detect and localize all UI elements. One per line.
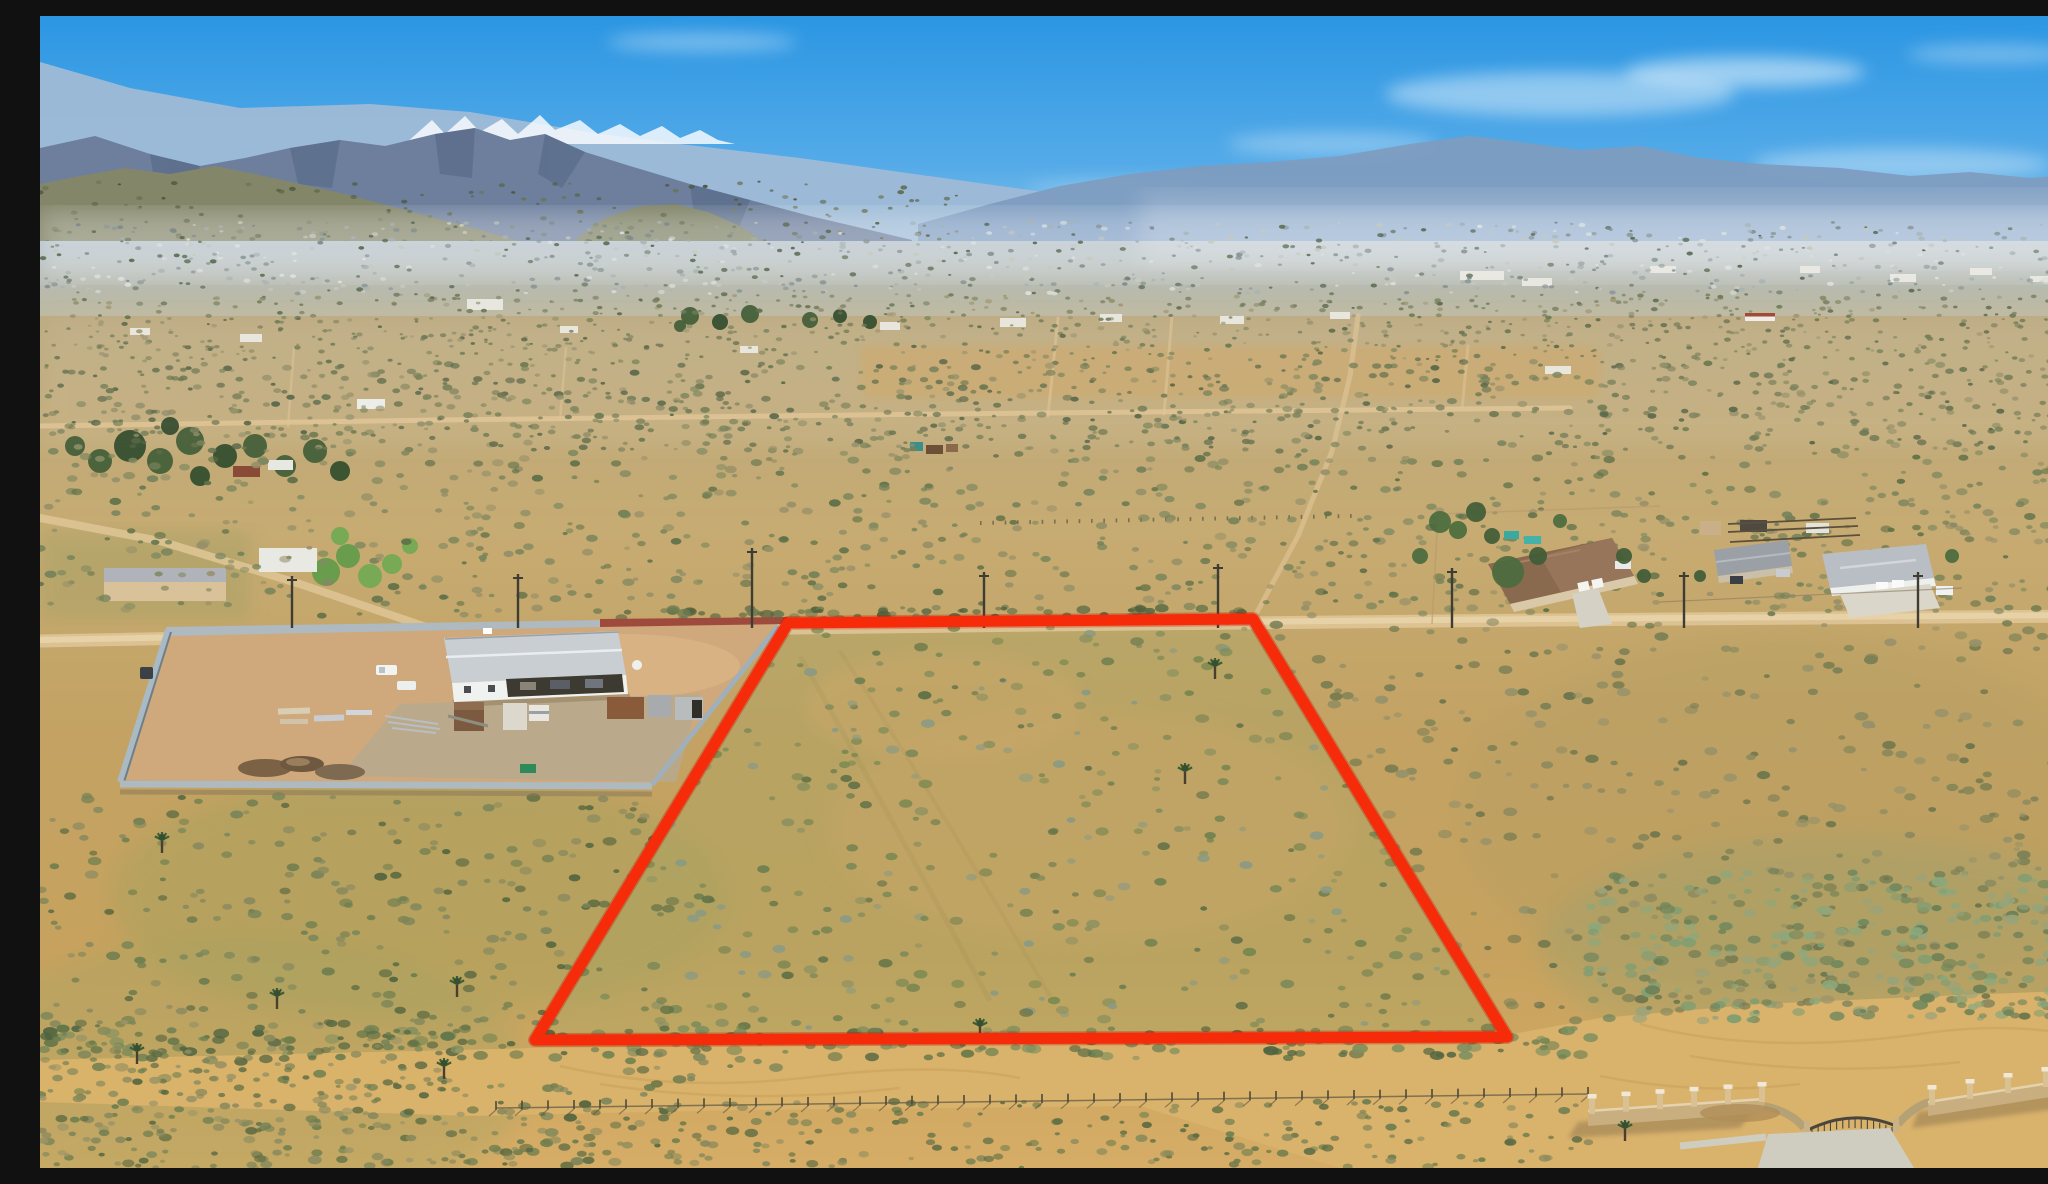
- fence-post: [1054, 520, 1056, 524]
- scrub-bush: [443, 915, 451, 920]
- scrub-bush: [860, 335, 864, 338]
- scrub-bush: [1875, 340, 1879, 342]
- scrub-bush: [274, 303, 278, 305]
- scrub-bush: [196, 889, 205, 894]
- scrub-bush: [1225, 344, 1232, 348]
- scrub-bush: [1260, 255, 1263, 257]
- scrub-bush: [1901, 471, 1906, 474]
- scrub-bush: [567, 590, 576, 596]
- scrub-bush: [463, 222, 469, 225]
- scrub-bush: [1227, 255, 1233, 259]
- scrub-bush: [1704, 250, 1708, 252]
- scrub-bush: [987, 390, 992, 393]
- scrub-bush: [769, 1063, 783, 1072]
- scrub-bush: [1658, 441, 1663, 444]
- scrub-bush: [919, 498, 931, 505]
- scrub-bush: [1549, 432, 1555, 435]
- scrub-bush: [1632, 327, 1635, 329]
- scrub-bush: [88, 421, 92, 424]
- scrub-bush: [959, 735, 968, 740]
- scrub-bush: [1632, 271, 1638, 275]
- scrub-bush: [1176, 306, 1182, 310]
- scrub-bush: [1629, 230, 1632, 232]
- scrub-bush: [1490, 497, 1496, 501]
- scrub-bush: [107, 428, 115, 433]
- scrub-bush: [1600, 260, 1604, 263]
- fence-post: [1202, 517, 1204, 521]
- scrub-bush: [884, 313, 887, 315]
- scrub-bush: [582, 282, 589, 286]
- scrub-bush: [1619, 648, 1630, 655]
- scrub-bush: [199, 539, 211, 546]
- scrub-bush: [1045, 363, 1055, 369]
- scrub-bush: [947, 318, 950, 320]
- scrub-bush: [1071, 458, 1080, 463]
- scrub-bush: [1367, 429, 1372, 432]
- scrub-bush: [175, 205, 181, 208]
- scrub-bush: [1612, 681, 1624, 689]
- scrub-bush: [159, 959, 166, 964]
- scrub-bush: [1245, 292, 1249, 294]
- scrub-bush: [1638, 428, 1643, 431]
- scrub-bush: [356, 275, 360, 278]
- scrub-bush: [1050, 448, 1059, 453]
- scrub-bush: [956, 399, 963, 403]
- scrub-bush: [1985, 596, 1996, 603]
- scrub-bush: [1107, 411, 1111, 414]
- scrub-bush: [1098, 236, 1104, 240]
- scrub-bush: [318, 338, 323, 341]
- scrub-bush: [535, 489, 545, 495]
- scrub-bush: [415, 1061, 428, 1069]
- scrub-bush: [1996, 409, 2004, 414]
- scrub-bush: [920, 377, 928, 382]
- scrub-bush: [1072, 892, 1079, 896]
- scrub-bush: [1850, 388, 1854, 390]
- scrub-bush: [1009, 520, 1017, 525]
- scrub-bush: [1825, 609, 1832, 613]
- scrub-bush: [2023, 945, 2033, 951]
- scrub-bush: [363, 388, 368, 391]
- scrub-bush: [1032, 552, 1039, 557]
- scrub-bush: [848, 782, 860, 790]
- scrub-bush: [1919, 413, 1923, 416]
- scrub-bush: [1808, 817, 1820, 825]
- scrub-bush: [750, 409, 756, 413]
- scrub-bush: [696, 379, 704, 384]
- scrub-bush: [199, 1006, 209, 1012]
- scrub-bush: [1678, 237, 1681, 239]
- scrub-bush: [804, 668, 817, 676]
- scrub-bush: [278, 1131, 286, 1136]
- scrub-bush: [890, 365, 898, 370]
- scrub-bush: [154, 425, 160, 429]
- scrub-bush: [706, 1004, 712, 1008]
- scrub-bush: [463, 412, 473, 418]
- scrub-bush: [1849, 357, 1855, 361]
- scrub-bush: [1579, 223, 1586, 227]
- scrub-bush: [947, 391, 955, 396]
- scrub-bush: [601, 382, 606, 385]
- scrub-bush: [1962, 786, 1975, 794]
- scrub-bush: [1583, 281, 1588, 284]
- scrub-bush: [1379, 372, 1388, 378]
- scrub-bush: [1786, 719, 1795, 724]
- scrub-bush: [1334, 688, 1342, 693]
- scrub-bush: [1408, 305, 1414, 308]
- scrub-bush: [1650, 648, 1657, 652]
- scrub-bush: [1113, 470, 1119, 474]
- scrub-bush: [1453, 355, 1457, 358]
- scrub-bush: [1812, 452, 1817, 455]
- scrub-bush: [820, 200, 827, 204]
- scrub-bush: [1174, 826, 1184, 832]
- scrub-bush: [1945, 400, 1950, 403]
- scrub-bush: [1155, 574, 1167, 581]
- scrub-bush: [605, 396, 611, 400]
- scrub-bush: [758, 365, 762, 368]
- scrub-bush: [1980, 783, 1992, 791]
- scrub-bush: [594, 259, 599, 262]
- scrub-bush: [2039, 401, 2046, 405]
- scrub-bush: [143, 279, 146, 281]
- scrub-bush: [1962, 448, 1969, 452]
- scrub-bush: [954, 252, 958, 255]
- scrub-bush: [810, 540, 818, 545]
- scrub-bush: [200, 899, 206, 903]
- scrub-bush: [1985, 536, 1993, 541]
- scrub-bush: [1826, 821, 1836, 827]
- scrub-bush: [396, 473, 404, 478]
- scrub-bush: [666, 897, 679, 905]
- scrub-bush: [873, 369, 879, 373]
- scrub-bush: [831, 273, 835, 276]
- scrub-bush: [1352, 314, 1356, 317]
- scrub-bush: [1056, 249, 1062, 253]
- scrub-bush: [1811, 385, 1818, 389]
- scrub-bush: [501, 349, 504, 351]
- scrub-bush: [137, 962, 146, 968]
- scrub-bush: [423, 1077, 431, 1082]
- scrub-bush: [1789, 747, 1797, 752]
- scrub-bush: [1707, 277, 1710, 279]
- scrub-bush: [1534, 721, 1546, 728]
- scrub-bush: [1916, 902, 1932, 912]
- scrub-bush: [586, 535, 598, 542]
- scrub-bush: [333, 423, 337, 426]
- scrub-bush: [320, 375, 325, 378]
- scrub-bush: [1512, 225, 1516, 228]
- scrub-bush: [966, 253, 972, 257]
- scrub-bush: [1593, 355, 1597, 357]
- scrub-bush: [401, 200, 407, 204]
- scrub-bush: [620, 232, 625, 235]
- scrub-bush: [788, 260, 792, 263]
- scrub-bush: [1142, 257, 1146, 260]
- scrub-bush: [732, 294, 737, 297]
- scrub-bush: [166, 387, 171, 390]
- scrub-bush: [1090, 312, 1095, 315]
- scrub-bush: [1979, 368, 1984, 371]
- scrub-bush: [2034, 539, 2043, 545]
- scrub-bush: [1707, 876, 1721, 885]
- scrub-bush: [554, 243, 559, 246]
- scrub-bush: [1949, 289, 1954, 292]
- scrub-bush: [1580, 355, 1584, 357]
- scrub-bush: [531, 285, 538, 289]
- scrub-bush: [513, 433, 522, 439]
- scrub-bush: [1611, 530, 1616, 533]
- scrub-bush: [1293, 304, 1297, 307]
- scrub-bush: [1928, 243, 1934, 247]
- scrub-bush: [1504, 833, 1517, 841]
- scrub-bush: [669, 284, 675, 288]
- scrub-bush: [1843, 264, 1847, 267]
- scrub-bush: [1391, 357, 1396, 360]
- scrub-bush: [1522, 318, 1527, 321]
- scrub-bush: [882, 892, 891, 898]
- scrub-bush: [322, 579, 334, 586]
- scrub-bush: [1647, 413, 1656, 419]
- scrub-bush: [49, 431, 56, 436]
- scrub-bush: [108, 1091, 118, 1097]
- scrub-bush: [1635, 497, 1642, 501]
- scrub-bush: [971, 237, 974, 239]
- scrub-bush: [992, 415, 996, 418]
- scrub-bush: [1998, 876, 2004, 880]
- scrub-bush: [1452, 349, 1458, 353]
- scrub-bush: [1575, 288, 1578, 290]
- scrub-bush: [554, 503, 564, 509]
- scrub-bush: [894, 283, 899, 286]
- scrub-bush: [1914, 684, 1921, 688]
- scrub-bush: [423, 374, 427, 377]
- scrub-bush: [232, 1103, 239, 1107]
- scrub-bush: [1382, 810, 1395, 818]
- scrub-bush: [1003, 297, 1008, 300]
- scrub-bush: [677, 269, 684, 273]
- scrub-bush: [492, 459, 504, 466]
- scrub-bush: [1603, 385, 1608, 388]
- scrub-bush: [1079, 795, 1086, 799]
- scrub-bush: [929, 366, 939, 372]
- scrub-bush: [2031, 878, 2037, 882]
- scrub-bush: [1501, 346, 1506, 349]
- scrub-bush: [1591, 232, 1596, 235]
- scrub-bush: [1190, 980, 1198, 985]
- scrub-bush: [548, 430, 556, 435]
- scrub-bush: [1451, 342, 1454, 344]
- scrub-bush: [1440, 969, 1450, 975]
- scrub-bush: [1923, 724, 1931, 729]
- scrub-bush: [1466, 274, 1473, 278]
- scrub-bush: [1883, 419, 1888, 422]
- scrub-bush: [1989, 813, 1996, 817]
- scrub-bush: [656, 997, 667, 1004]
- scrub-bush: [521, 366, 529, 371]
- scrub-bush: [1892, 266, 1898, 270]
- scrub-bush: [1415, 357, 1421, 361]
- scrub-bush: [489, 594, 495, 598]
- scrub-bush: [112, 226, 118, 230]
- scrub-bush: [1937, 314, 1942, 317]
- scrub-bush: [819, 235, 826, 239]
- scrub-bush: [906, 294, 911, 297]
- scrub-bush: [74, 274, 77, 276]
- scrub-bush: [1769, 491, 1781, 498]
- scrub-bush: [1409, 313, 1415, 317]
- scrub-bush: [1552, 235, 1558, 239]
- scrub-bush: [244, 897, 256, 904]
- scrub-bush: [1092, 789, 1103, 796]
- scrub-bush: [1246, 403, 1255, 408]
- scrub-bush: [1738, 288, 1745, 292]
- scrub-bush: [977, 565, 984, 569]
- scrub-bush: [789, 304, 793, 307]
- scrub-bush: [1082, 690, 1091, 696]
- scrub-bush: [2022, 626, 2035, 634]
- scrub-bush: [993, 454, 999, 458]
- scrub-bush: [861, 324, 867, 327]
- scrub-bush: [542, 344, 548, 348]
- scrub-bush: [797, 828, 805, 833]
- scrub-bush: [1000, 678, 1006, 682]
- scrub-bush: [1074, 702, 1086, 709]
- scrub-bush: [388, 583, 400, 590]
- scrub-bush: [74, 344, 78, 346]
- scrub-bush: [1318, 854, 1325, 858]
- scrub-bush: [1653, 299, 1659, 303]
- scrub-bush: [411, 222, 415, 224]
- scrub-bush: [1429, 400, 1435, 404]
- scrub-bush: [959, 534, 965, 538]
- scrub-bush: [95, 290, 101, 293]
- scrub-bush: [1328, 1014, 1335, 1018]
- scrub-bush: [77, 257, 80, 259]
- scrub-bush: [874, 418, 881, 422]
- scrub-bush: [931, 819, 941, 825]
- scrub-bush: [914, 273, 917, 275]
- scrub-bush: [51, 282, 58, 286]
- scrub-bush: [2014, 847, 2020, 851]
- scrub-bush: [1442, 344, 1448, 348]
- scrub-bush: [1315, 248, 1321, 252]
- scrub-bush: [1570, 536, 1578, 541]
- scrub-bush: [1762, 444, 1767, 447]
- scrub-bush: [1865, 511, 1871, 515]
- scrub-bush: [444, 426, 450, 430]
- scrub-bush: [231, 974, 243, 981]
- scrub-bush: [1758, 235, 1761, 237]
- scrub-bush: [1749, 372, 1759, 378]
- scrub-bush: [587, 263, 594, 267]
- scrub-bush: [670, 414, 674, 417]
- scrub-bush: [1117, 393, 1122, 396]
- scrub-bush: [1007, 903, 1014, 907]
- scrub-bush: [612, 207, 616, 209]
- scrub-bush: [1170, 374, 1176, 378]
- scrub-bush: [80, 453, 91, 460]
- scrub-bush: [1586, 232, 1592, 236]
- scrub-bush: [523, 543, 534, 550]
- scrub-bush: [1194, 948, 1200, 952]
- scrub-bush: [1939, 484, 1947, 489]
- scrub-bush: [1930, 943, 1941, 950]
- scrub-bush: [514, 522, 525, 529]
- scrub-bush: [781, 325, 787, 328]
- scrub-bush: [1687, 252, 1693, 256]
- scrub-bush: [1609, 243, 1614, 246]
- scrub-bush: [1395, 478, 1400, 481]
- scrub-bush: [955, 195, 958, 197]
- scrub-bush: [1092, 431, 1097, 434]
- scrub-bush: [670, 290, 673, 292]
- scrub-bush: [430, 846, 437, 850]
- scrub-bush: [86, 942, 94, 947]
- scrub-bush: [704, 415, 710, 419]
- scrub-bush: [318, 350, 324, 354]
- scrub-bush: [625, 1058, 636, 1065]
- scrub-bush: [143, 908, 150, 912]
- scrub-bush: [1224, 674, 1233, 680]
- scrub-bush: [1284, 414, 1291, 418]
- scrub-bush: [128, 889, 137, 895]
- scrub-bush: [716, 336, 722, 340]
- scrub-bush: [1416, 363, 1422, 367]
- scrub-bush: [522, 399, 532, 405]
- scrub-bush: [92, 202, 99, 206]
- scrub-bush: [1195, 714, 1209, 723]
- scrub-bush: [610, 274, 616, 277]
- scrub-bush: [278, 427, 284, 431]
- scrub-bush: [128, 1068, 137, 1074]
- scrub-bush: [1743, 799, 1751, 804]
- scrub-bush: [379, 969, 392, 977]
- scrub-bush: [2027, 278, 2034, 282]
- scrub-bush: [801, 575, 809, 580]
- scrub-bush: [626, 295, 629, 297]
- scrub-bush: [1380, 486, 1391, 493]
- scrub-bush: [641, 1006, 649, 1011]
- scrub-bush: [1499, 604, 1505, 607]
- scrub-bush: [1892, 295, 1898, 299]
- scrub-bush: [1280, 354, 1287, 358]
- scrub-bush: [668, 238, 673, 241]
- scrub-bush: [1100, 300, 1105, 303]
- scrub-bush: [786, 408, 794, 413]
- scrub-bush: [72, 978, 80, 983]
- scrub-bush: [1229, 316, 1233, 318]
- scrub-bush: [907, 275, 913, 279]
- scrub-bush: [619, 809, 628, 814]
- scrub-bush: [1659, 355, 1664, 358]
- scrub-bush: [435, 355, 439, 357]
- scrub-bush: [782, 581, 790, 586]
- scrub-bush: [456, 858, 470, 867]
- scrub-bush: [1955, 631, 1968, 639]
- scrub-bush: [918, 519, 927, 524]
- scrub-bush: [1731, 984, 1739, 989]
- scrub-bush: [791, 1020, 801, 1026]
- scrub-bush: [428, 334, 434, 338]
- scrub-bush: [415, 374, 424, 379]
- scrub-bush: [1346, 555, 1352, 559]
- scrub-bush: [1569, 425, 1573, 428]
- scrub-bush: [212, 253, 217, 256]
- scrub-bush: [1705, 489, 1713, 494]
- scrub-bush: [1632, 843, 1643, 850]
- scrub-bush: [1367, 754, 1373, 758]
